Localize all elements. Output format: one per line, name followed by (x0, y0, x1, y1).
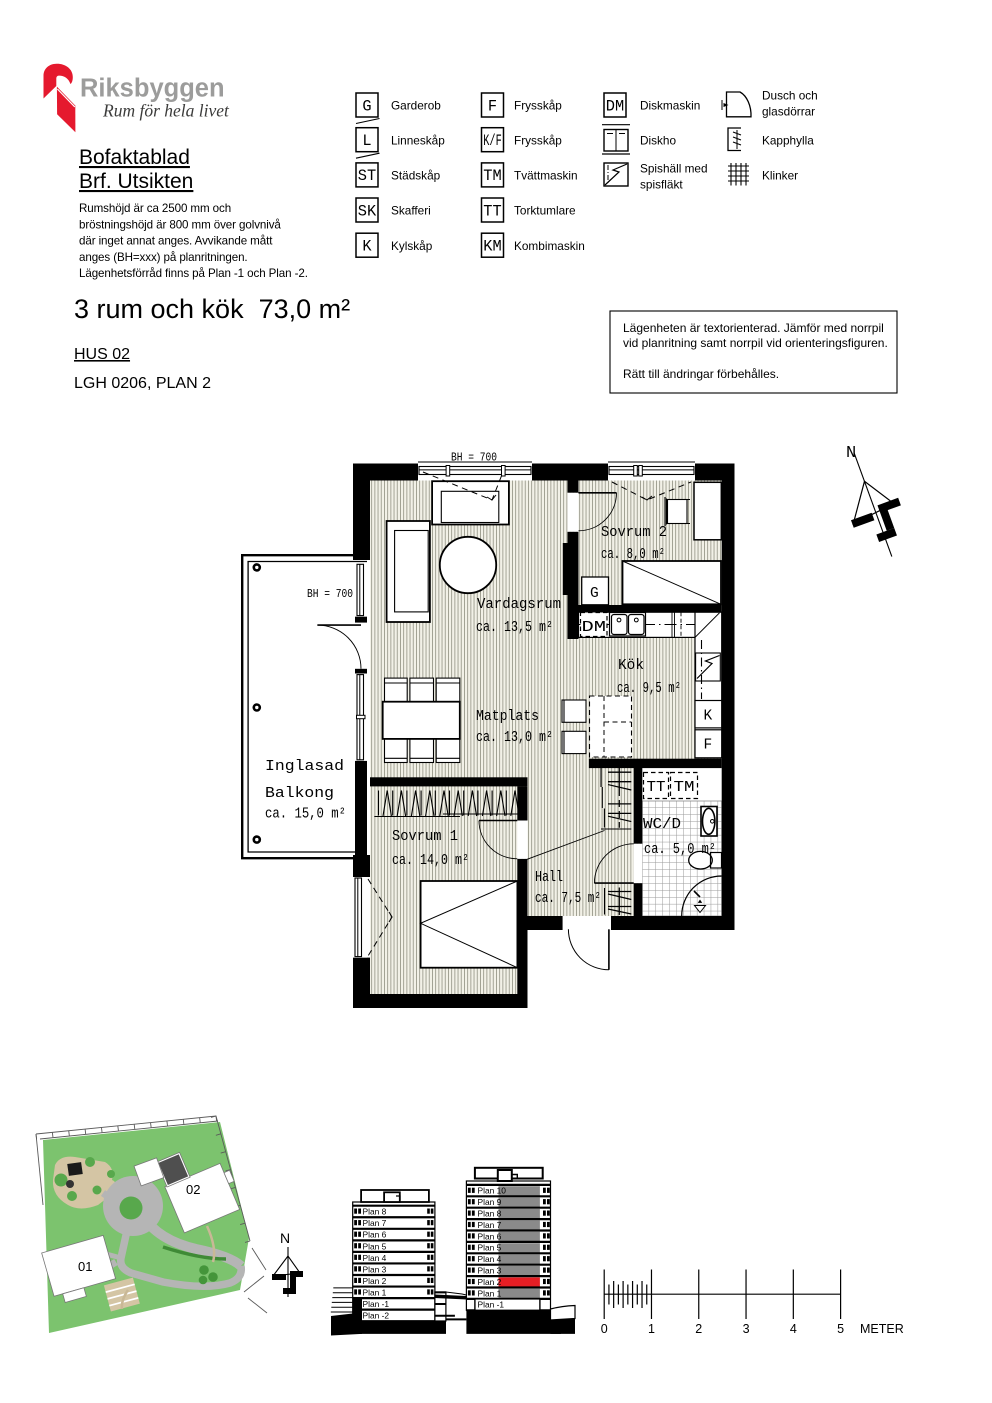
svg-text:Plan 3: Plan 3 (363, 1264, 387, 1274)
svg-text:METER: METER (860, 1322, 904, 1336)
svg-text:glasdörrar: glasdörrar (762, 105, 815, 119)
svg-text:BH = 700: BH = 700 (307, 588, 353, 601)
svg-text:Diskmaskin: Diskmaskin (640, 99, 700, 113)
svg-text:HUS 02: HUS 02 (74, 346, 130, 363)
svg-text:där inget annat anges. Avvikan: där inget annat anges. Avvikande mått (79, 235, 273, 248)
svg-text:Plan 6: Plan 6 (478, 1231, 502, 1241)
svg-text:BH = 700: BH = 700 (451, 452, 497, 465)
svg-text:ca. 9,5 m²: ca. 9,5 m² (617, 681, 681, 697)
svg-text:Plan 7: Plan 7 (363, 1218, 387, 1228)
svg-text:ca. 7,5 m²: ca. 7,5 m² (535, 891, 601, 907)
svg-text:4: 4 (790, 1322, 797, 1336)
svg-text:Plan 5: Plan 5 (363, 1241, 387, 1251)
svg-text:K/F: K/F (483, 132, 502, 150)
svg-text:Plan 1: Plan 1 (363, 1287, 387, 1297)
svg-text:K: K (362, 238, 372, 256)
svg-text:Garderob: Garderob (391, 99, 441, 113)
svg-text:F: F (488, 97, 497, 115)
svg-text:Plan -1: Plan -1 (478, 1300, 505, 1310)
svg-text:N: N (846, 444, 856, 463)
svg-text:Linneskåp: Linneskåp (391, 133, 445, 147)
svg-text:Riksbyggen: Riksbyggen (80, 75, 225, 103)
svg-text:Vardagsrum: Vardagsrum (477, 597, 561, 613)
svg-text:Hall: Hall (535, 870, 563, 886)
svg-text:Inglasad: Inglasad (265, 759, 344, 775)
svg-text:Plan 1: Plan 1 (478, 1288, 502, 1298)
svg-text:Rum för hela livet: Rum för hela livet (102, 101, 230, 121)
svg-text:Bofaktablad: Bofaktablad (79, 146, 190, 169)
svg-text:ST: ST (358, 167, 376, 185)
svg-text:2: 2 (695, 1322, 702, 1336)
svg-text:Kök: Kök (618, 658, 644, 674)
svg-text:anges (BH=xxx) på planritninge: anges (BH=xxx) på planritningen. (79, 251, 248, 264)
svg-text:F: F (704, 738, 713, 754)
svg-text:TT: TT (483, 202, 501, 220)
svg-text:Plan 4: Plan 4 (363, 1253, 387, 1263)
svg-text:spisfläkt: spisfläkt (640, 177, 683, 191)
svg-text:Skafferi: Skafferi (391, 204, 431, 218)
svg-text:Frysskåp: Frysskåp (514, 99, 562, 113)
svg-text:Plan -1: Plan -1 (363, 1299, 390, 1309)
svg-text:DM: DM (606, 97, 624, 115)
svg-text:Plan 6: Plan 6 (363, 1230, 387, 1240)
svg-text:Sovrum 1: Sovrum 1 (392, 829, 458, 845)
svg-text:Kapphylla: Kapphylla (762, 133, 814, 147)
svg-text:G: G (362, 97, 371, 115)
svg-text:bröstningshöjd är 800 mm över: bröstningshöjd är 800 mm över golvnivå (79, 218, 281, 231)
svg-text:vid planritning samt norrpil v: vid planritning samt norrpil vid oriente… (623, 336, 888, 350)
svg-text:TM: TM (483, 167, 501, 185)
svg-text:K: K (704, 709, 713, 725)
svg-text:Lägenheten är textorienterad.: Lägenheten är textorienterad. Jämför med… (623, 321, 884, 335)
svg-text:3: 3 (743, 1322, 750, 1336)
svg-text:Plan 7: Plan 7 (478, 1220, 502, 1230)
svg-text:Plan 2: Plan 2 (363, 1276, 387, 1286)
svg-text:Matplats: Matplats (476, 709, 539, 725)
svg-text:Torktumlare: Torktumlare (514, 204, 576, 218)
svg-text:N: N (280, 1230, 290, 1246)
svg-text:Sovrum 2: Sovrum 2 (601, 525, 667, 541)
svg-text:TM: TM (674, 780, 695, 796)
svg-text:Plan 5: Plan 5 (478, 1243, 502, 1253)
svg-text:Kombimaskin: Kombimaskin (514, 239, 585, 253)
svg-text:Balkong: Balkong (265, 786, 334, 802)
svg-text:3 rum och kök 73,0 m²: 3 rum och kök 73,0 m² (74, 294, 350, 324)
svg-text:KM: KM (483, 238, 501, 256)
svg-text:5: 5 (837, 1322, 844, 1336)
svg-text:Rätt till ändringar förbehålle: Rätt till ändringar förbehålles. (623, 367, 779, 381)
svg-text:0: 0 (601, 1322, 608, 1336)
svg-text:SK: SK (358, 202, 377, 220)
svg-text:01: 01 (78, 1259, 92, 1274)
svg-text:Kylskåp: Kylskåp (391, 239, 433, 253)
svg-text:ca. 13,5 m²: ca. 13,5 m² (476, 620, 553, 636)
svg-text:L: L (362, 132, 371, 150)
svg-text:ca. 8,0 m²: ca. 8,0 m² (601, 547, 665, 563)
svg-text:Dusch och: Dusch och (762, 89, 818, 103)
svg-text:DM: DM (582, 620, 607, 636)
svg-text:TT: TT (647, 780, 666, 796)
svg-text:G: G (590, 586, 599, 602)
svg-text:1: 1 (648, 1322, 655, 1336)
svg-text:Plan 8: Plan 8 (478, 1209, 502, 1219)
svg-text:Rumshöjd är ca 2500 mm och: Rumshöjd är ca 2500 mm och (79, 202, 231, 215)
svg-text:LGH 0206, PLAN 2: LGH 0206, PLAN 2 (74, 375, 211, 392)
svg-text:Plan 4: Plan 4 (478, 1254, 502, 1264)
svg-text:ca. 5,0 m²: ca. 5,0 m² (644, 842, 716, 858)
svg-text:Frysskåp: Frysskåp (514, 133, 562, 147)
svg-text:Lägenhetsförråd finns på Plan: Lägenhetsförråd finns på Plan -1 och Pla… (79, 267, 308, 280)
svg-text:Plan 9: Plan 9 (478, 1197, 502, 1207)
svg-text:Diskho: Diskho (640, 133, 676, 147)
svg-text:Städskåp: Städskåp (391, 169, 441, 183)
svg-text:Plan 2: Plan 2 (478, 1277, 502, 1287)
svg-text:Plan 10: Plan 10 (478, 1186, 507, 1196)
svg-text:Klinker: Klinker (762, 168, 798, 182)
svg-text:Tvättmaskin: Tvättmaskin (514, 169, 578, 183)
svg-text:ca. 13,0 m²: ca. 13,0 m² (476, 730, 553, 746)
svg-text:ca. 15,0 m²: ca. 15,0 m² (265, 807, 346, 823)
svg-text:Plan 3: Plan 3 (478, 1266, 502, 1276)
svg-text:Plan 8: Plan 8 (363, 1207, 387, 1217)
svg-text:ca. 14,0 m²: ca. 14,0 m² (392, 853, 469, 869)
svg-text:Brf. Utsikten: Brf. Utsikten (79, 170, 193, 193)
svg-text:WC/D: WC/D (643, 817, 681, 833)
svg-text:Spishäll med: Spishäll med (640, 161, 708, 175)
svg-text:Plan -2: Plan -2 (363, 1311, 390, 1321)
svg-text:02: 02 (186, 1182, 200, 1197)
